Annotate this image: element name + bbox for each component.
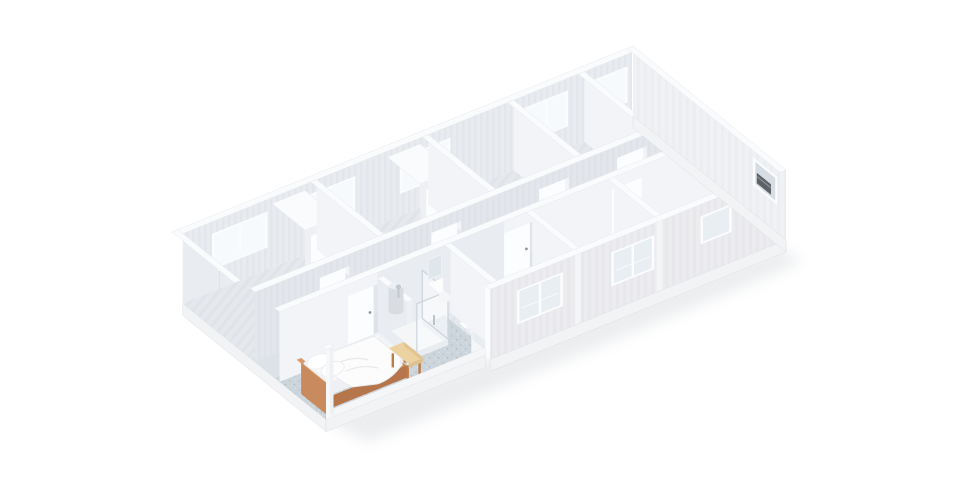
front-wall-cut-end	[485, 285, 490, 359]
render-canvas	[0, 0, 960, 482]
isometric-building-render	[0, 0, 960, 482]
front-wall-seam-2	[657, 220, 663, 292]
front-wall-seam-1	[575, 253, 581, 325]
